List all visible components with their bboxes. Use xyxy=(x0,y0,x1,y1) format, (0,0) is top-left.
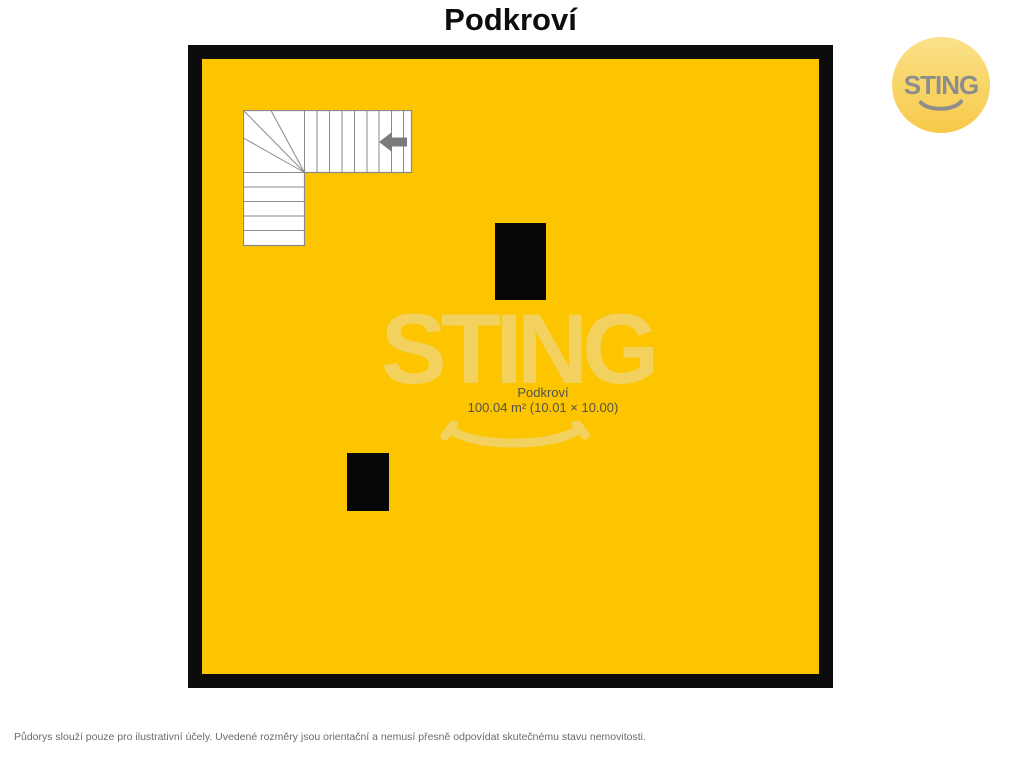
room-label: Podkroví 100.04 m² (10.01 × 10.00) xyxy=(468,385,619,415)
sting-logo-text: STING xyxy=(892,72,990,98)
sting-smile-watermark-icon xyxy=(440,421,590,455)
page-title: Podkroví xyxy=(188,4,833,35)
disclaimer-text: Půdorys slouží pouze pro ilustrativní úč… xyxy=(14,731,646,744)
room-dimensions: 100.04 m² (10.01 × 10.00) xyxy=(468,400,619,415)
sting-smile-logo-icon xyxy=(917,99,965,113)
staircase xyxy=(243,110,413,247)
floor-plan-room: STING Podkroví 100.04 m² (10.01 × 10.00) xyxy=(188,45,833,688)
chimney-block-1 xyxy=(495,223,546,300)
chimney-block-2 xyxy=(347,453,389,511)
sting-logo-badge: STING xyxy=(892,37,990,133)
sting-watermark-text: STING xyxy=(381,299,654,398)
room-name: Podkroví xyxy=(468,385,619,400)
